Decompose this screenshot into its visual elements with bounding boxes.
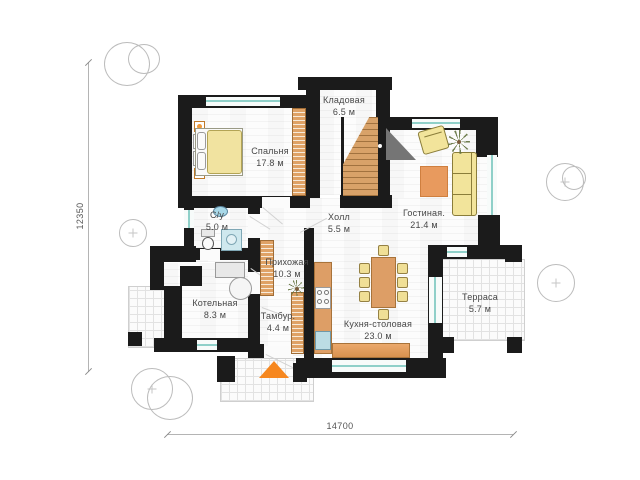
dimension-tick: [510, 431, 517, 438]
chair-icon: [397, 277, 408, 288]
shower-drain: [226, 234, 237, 245]
plant-icon: [448, 130, 470, 154]
room-area: 5.7 м: [438, 303, 522, 315]
tree-icon: [128, 44, 160, 74]
washing-machine-icon: [215, 262, 245, 278]
room-label-storage: Кладовая 6.5 м: [302, 94, 386, 118]
wall: [476, 117, 498, 157]
entrance-arrow-icon: [259, 361, 289, 378]
room-label-hall: Холл 5.5 м: [297, 211, 381, 235]
room-name: Терраса: [438, 291, 522, 303]
rug-icon: [420, 166, 448, 197]
terrace-pillar: [470, 249, 482, 259]
room-area: 21.4 м: [382, 219, 466, 231]
sofa-cushion-line: [453, 194, 471, 195]
terrace-door: [447, 247, 467, 257]
dining-table-icon: [371, 257, 396, 308]
terrace-pillar: [505, 245, 522, 262]
porch-pillar: [293, 363, 307, 382]
room-label-bathroom: С/у 5.0 м: [175, 209, 259, 233]
room-name: Прихожая: [245, 256, 329, 268]
burner-icon: [317, 290, 322, 295]
dimension-label-horizontal: 14700: [300, 421, 380, 431]
room-name: Кладовая: [302, 94, 386, 106]
wall: [178, 196, 310, 208]
chair-icon: [397, 263, 408, 274]
floor-plan: 12350 14700: [0, 0, 640, 480]
wall: [180, 266, 202, 286]
wall: [128, 332, 142, 346]
dimension-tick: [85, 368, 92, 375]
tree-icon: [562, 166, 586, 190]
pillow-icon: [197, 132, 206, 150]
window: [206, 97, 280, 106]
room-area: 23.0 м: [336, 330, 420, 342]
door-opening: [262, 197, 290, 208]
room-name: Гостиная.: [382, 207, 466, 219]
door-opening: [200, 249, 220, 260]
wall: [248, 344, 264, 358]
room-label-terrace: Терраса 5.7 м: [438, 291, 522, 315]
wall: [304, 228, 314, 358]
room-name: Тамбур.: [236, 310, 320, 322]
room-name: Холл: [297, 211, 381, 223]
sofa-back-line: [471, 153, 472, 215]
room-area: 10.3 м: [245, 268, 329, 280]
wall: [150, 246, 164, 290]
room-area: 4.4 м: [236, 322, 320, 334]
room-label-kitchen-dining: Кухня-столовая 23.0 м: [336, 318, 420, 342]
pillow-icon: [197, 152, 206, 170]
window: [332, 360, 406, 372]
room-name: Спальня: [228, 145, 312, 157]
window: [197, 340, 217, 350]
room-area: 17.8 м: [228, 157, 312, 169]
room-label-vestibule: Тамбур. 4.4 м: [236, 310, 320, 334]
room-name: Котельная: [173, 297, 257, 309]
room-label-entrance-hall: Прихожая 10.3 м: [245, 256, 329, 280]
fireplace-dot: [378, 144, 382, 148]
terrace-pillar: [441, 337, 454, 353]
tree-icon: [537, 264, 575, 302]
porch-pillar: [217, 356, 235, 382]
dimension-line-vertical: [88, 62, 89, 372]
burner-icon: [324, 299, 329, 304]
tree-icon: [147, 376, 193, 420]
room-name: Кухня-столовая: [336, 318, 420, 330]
burner-icon: [317, 299, 322, 304]
room-area: 5.5 м: [297, 223, 381, 235]
room-area: 5.0 м: [175, 221, 259, 233]
room-label-bedroom: Спальня 17.8 м: [228, 145, 312, 169]
window: [487, 155, 497, 215]
dimension-label-vertical: 12350: [75, 194, 85, 238]
wall: [178, 95, 192, 207]
chair-icon: [359, 263, 370, 274]
chair-icon: [359, 277, 370, 288]
tree-icon: [119, 219, 147, 247]
burner-icon: [324, 290, 329, 295]
plant-icon: [288, 280, 304, 296]
dimension-line-horizontal: [167, 434, 513, 435]
toilet-bowl: [202, 237, 214, 250]
sofa-cushion-line: [453, 173, 471, 174]
terrace-pillar: [507, 337, 522, 353]
chair-icon: [397, 291, 408, 302]
room-label-living-room: Гостиная. 21.4 м: [382, 207, 466, 231]
kitchen-counter-icon: [332, 343, 410, 358]
room-name: С/у: [175, 209, 259, 221]
chair-icon: [359, 291, 370, 302]
room-area: 6.5 м: [302, 106, 386, 118]
chair-icon: [378, 245, 389, 256]
